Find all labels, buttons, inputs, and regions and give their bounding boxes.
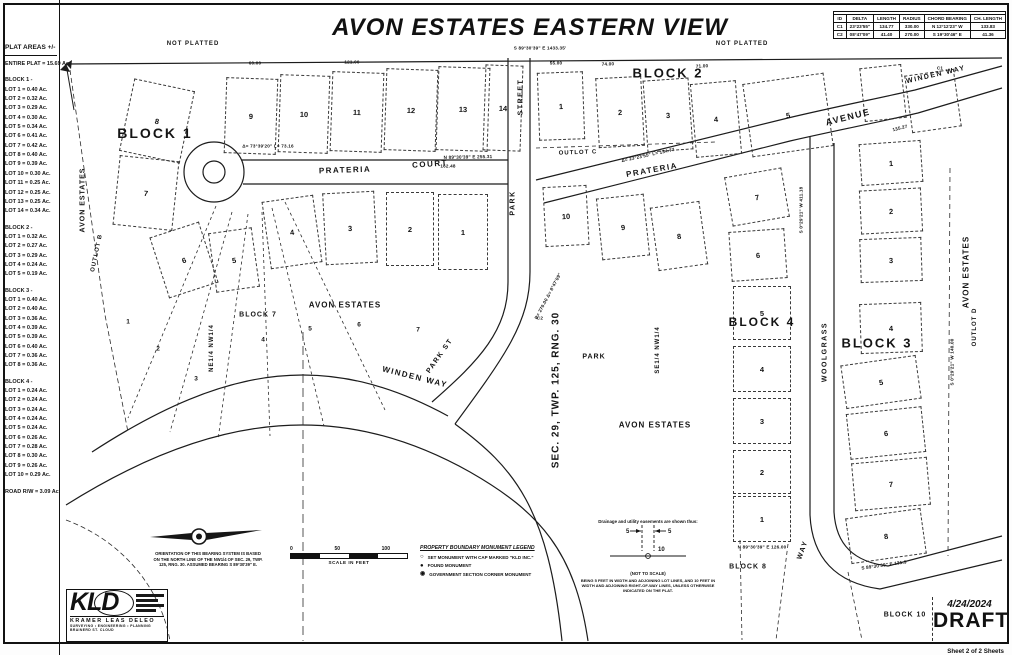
plat-areas-section: BLOCK 2 -LOT 1 = 0.32 Ac.LOT 2 = 0.27 Ac… <box>5 224 57 280</box>
scale-caption: SCALE IN FEET <box>290 560 408 565</box>
lot-number: 3 <box>760 417 764 426</box>
page-title: AVON ESTATES EASTERN VIEW <box>330 14 730 42</box>
curve-table-header: CHORD BEARING <box>924 15 970 23</box>
lot-number: 5 <box>785 110 790 119</box>
curve-table-row: C208°47'09"41.40270.00S 19°30'46" E41.36 <box>833 31 1005 39</box>
lot-number: 9 <box>620 222 625 231</box>
dimension-label: 55.00 <box>550 61 563 66</box>
area-label: BLOCK 7 <box>239 312 277 319</box>
lot-parcel: 4 <box>690 80 742 158</box>
lot-number: 3 <box>194 376 198 383</box>
legend-label: SET MONUMENT WITH CAP MARKED "KLD INC." <box>428 555 534 560</box>
lot-area: LOT 2 = 0.40 Ac. <box>5 305 57 314</box>
curve-table-cell: C1 <box>833 23 846 31</box>
lot-parcel: 9 <box>596 194 650 261</box>
easement-caption: (NOT TO SCALE) <box>578 571 718 576</box>
curve-table-cell: 08°47'09" <box>846 31 873 39</box>
street-label: PRATERIA <box>625 161 678 179</box>
area-label: BLOCK 8 <box>729 564 767 571</box>
lot-area: LOT 2 = 0.24 Ac. <box>5 396 57 405</box>
lot-area: LOT 5 = 0.34 Ac. <box>5 123 57 132</box>
street-label: AVENUE <box>825 107 872 128</box>
street-label: WAY <box>796 539 809 560</box>
lot-parcel: 10 <box>278 74 331 154</box>
legend-symbol-icon: ● <box>420 563 424 569</box>
lot-parcel: 1 <box>859 140 924 186</box>
lot-parcel: 2 <box>733 450 791 494</box>
curve-table-cell: 134.77 <box>874 23 900 31</box>
street-label: WINDEN WAY <box>381 365 448 390</box>
legend-title: PROPERTY BOUNDARY MONUMENT LEGEND <box>420 545 600 551</box>
area-label: PARK <box>582 354 605 361</box>
curve-data-table: IDDELTALENGTHRADIUSCHORD BEARINGCH. LENG… <box>833 11 1006 39</box>
area-label: AVON ESTATES <box>80 168 87 233</box>
area-label: AVON ESTATES <box>962 236 971 308</box>
lot-parcel: 2 <box>386 192 434 266</box>
lot-number: 1 <box>461 228 465 237</box>
lot-area: LOT 2 = 0.32 Ac. <box>5 95 57 104</box>
curve-table-cell: 41.40 <box>874 31 900 39</box>
lot-number: 14 <box>499 103 508 112</box>
lot-number: 4 <box>714 114 719 123</box>
lot-number: 1 <box>559 101 563 110</box>
easement-detail: Drainage and utility easements are shown… <box>578 519 718 594</box>
lot-parcel: 10 <box>542 185 589 247</box>
firm-name: KRAMER LEAS DELEO <box>70 616 164 624</box>
lot-area: LOT 3 = 0.29 Ac. <box>5 104 57 113</box>
lot-area: LOT 9 = 0.26 Ac. <box>5 462 57 471</box>
area-label: NE1/4 NW1/4 <box>209 324 215 372</box>
dimension-label: N 89°30'39" E 126.00 <box>738 545 787 550</box>
road-row-area: ROAD R/W = 3.09 Ac. <box>5 488 57 497</box>
lot-area: LOT 5 = 0.19 Ac. <box>5 270 57 279</box>
lot-number: 7 <box>143 188 148 197</box>
lot-number: 6 <box>883 428 888 437</box>
lot-number: 5 <box>878 377 883 386</box>
lot-area: LOT 5 = 0.39 Ac. <box>5 333 57 342</box>
lot-number: 10 <box>300 109 309 118</box>
area-label: AVON ESTATES <box>619 421 691 430</box>
lot-parcel: 3 <box>859 237 922 283</box>
dimension-label: S 0°29'21" W 140.00 <box>950 339 955 386</box>
dimension-label: 60.00 <box>249 61 262 66</box>
lot-area: LOT 9 = 0.39 Ac. <box>5 160 57 169</box>
lot-area: LOT 13 = 0.25 Ac. <box>5 198 57 207</box>
dimension-label: C1 <box>937 66 943 71</box>
lot-parcel: 7 <box>724 167 790 226</box>
lot-parcel: 8 <box>119 78 195 163</box>
firm-offices: BRAINERD ST. CLOUD <box>70 628 164 632</box>
easement-width-left: 5 <box>626 529 630 535</box>
dimension-label: S 89°30'39" E 1433.35' <box>514 46 567 51</box>
lot-number: 6 <box>756 250 761 259</box>
lot-parcel: 8 <box>845 508 927 564</box>
street-label: PARK <box>510 190 517 215</box>
lot-number: 8 <box>883 531 888 540</box>
curve-table-cell: 330.00 <box>899 23 924 31</box>
sheet-number: Sheet 2 of 2 Sheets <box>947 648 1004 655</box>
lot-parcel: 4 <box>262 195 323 270</box>
lot-number: 6 <box>181 255 188 265</box>
legend-item: ◉GOVERNMENT SECTION CORNER MONUMENT <box>420 571 600 577</box>
lot-area: LOT 3 = 0.36 Ac. <box>5 315 57 324</box>
lot-number: 6 <box>357 322 361 329</box>
easement-diagram: 5 5 10 <box>600 525 696 565</box>
curve-table-cell: C2 <box>833 31 846 39</box>
lot-area: LOT 4 = 0.24 Ac. <box>5 261 57 270</box>
lot-number: 1 <box>126 319 130 326</box>
area-label: BLOCK 4 <box>729 315 796 329</box>
lot-parcel: 5 <box>742 73 834 158</box>
lot-area: LOT 12 = 0.25 Ac. <box>5 189 57 198</box>
plat-areas-section: BLOCK 3 -LOT 1 = 0.40 Ac.LOT 2 = 0.40 Ac… <box>5 287 57 371</box>
dimension-label: 162.48 <box>440 164 455 169</box>
easement-title: Drainage and utility easements are shown… <box>578 519 718 524</box>
curve-table-header-row: IDDELTALENGTHRADIUSCHORD BEARINGCH. LENG… <box>833 15 1005 23</box>
draft-label: DRAFT <box>933 610 1006 631</box>
scale-tick: 50 <box>334 546 340 552</box>
dimension-label: S 0°29'21" W 411.18 <box>799 187 804 234</box>
scale-bar-graphic <box>290 553 408 559</box>
lot-number: 3 <box>348 223 353 232</box>
lot-parcel: 6 <box>728 228 787 282</box>
lot-parcel: 2 <box>859 187 923 234</box>
lot-parcel: 5 <box>733 286 791 340</box>
lot-parcel: 11 <box>330 71 385 153</box>
lot-number: 7 <box>754 192 760 202</box>
lot-area: LOT 2 = 0.27 Ac. <box>5 242 57 251</box>
scale-bar: 050100 SCALE IN FEET <box>290 546 416 565</box>
lot-area: LOT 3 = 0.29 Ac. <box>5 252 57 261</box>
lot-area: LOT 1 = 0.24 Ac. <box>5 387 57 396</box>
area-label: BLOCK 2 <box>632 66 703 81</box>
firm-address-smudge <box>136 594 164 614</box>
lot-number: 5 <box>231 255 236 264</box>
block-heading: BLOCK 3 - <box>5 287 57 296</box>
plat-areas-title: PLAT AREAS +/- <box>5 42 57 56</box>
area-label: OUTLOT D <box>972 308 978 347</box>
curve-table-header: ID <box>833 15 846 23</box>
lot-number: 4 <box>289 227 294 236</box>
lot-area: LOT 7 = 0.42 Ac. <box>5 142 57 151</box>
dimension-label: 135.27 <box>892 124 908 133</box>
lot-area: LOT 8 = 0.40 Ac. <box>5 151 57 160</box>
lot-parcel: 1 <box>733 496 791 542</box>
plat-sheet: 9101112131487654321123451098765432112345… <box>0 0 1012 655</box>
lot-number: 2 <box>408 225 412 234</box>
lot-area: LOT 6 = 0.41 Ac. <box>5 132 57 141</box>
lot-number: 13 <box>459 104 468 113</box>
lot-parcel: 4 <box>733 346 791 392</box>
lot-number: 11 <box>353 107 361 116</box>
curve-table-header: RADIUS <box>899 15 924 23</box>
lot-number: 7 <box>889 479 894 488</box>
lot-area: LOT 10 = 0.30 Ac. <box>5 170 57 179</box>
lot-number: 2 <box>156 346 160 353</box>
plat-areas-sidebar: PLAT AREAS +/- ENTIRE PLAT = 15.69 Ac. B… <box>0 0 60 655</box>
curve-table-cell: 41.36 <box>970 31 1005 39</box>
lot-parcel: 2 <box>595 76 645 148</box>
lot-number: 2 <box>889 206 894 215</box>
lot-number: 3 <box>889 255 893 264</box>
dimension-label: Δ= 73°39'20" L= 73.16 <box>242 144 293 149</box>
lot-area: LOT 6 = 0.40 Ac. <box>5 343 57 352</box>
lot-area: LOT 4 = 0.24 Ac. <box>5 415 57 424</box>
plat-areas-section: BLOCK 4 -LOT 1 = 0.24 Ac.LOT 2 = 0.24 Ac… <box>5 378 57 481</box>
lot-area: LOT 3 = 0.24 Ac. <box>5 406 57 415</box>
easement-width-right: 5 <box>668 529 672 535</box>
block-heading: BLOCK 2 - <box>5 224 57 233</box>
area-label: AVON ESTATES <box>309 301 381 310</box>
easement-note: BEING 5 FEET IN WIDTH AND ADJOINING LOT … <box>578 578 718 594</box>
lot-area: LOT 8 = 0.30 Ac. <box>5 452 57 461</box>
lot-parcel: 1 <box>438 194 488 270</box>
lot-number: 3 <box>666 110 671 119</box>
lot-parcel: 7 <box>851 457 931 511</box>
lot-area: LOT 14 = 0.34 Ac. <box>5 207 57 216</box>
lot-area: LOT 4 = 0.30 Ac. <box>5 114 57 123</box>
curve-table-cell: N 12°12'23" W <box>924 23 970 31</box>
lot-number: 1 <box>760 515 764 524</box>
lot-number: 8 <box>676 231 681 240</box>
dimension-label: 71.00 <box>696 63 709 69</box>
curve-table-header: DELTA <box>846 15 873 23</box>
plat-areas-section: BLOCK 1 -LOT 1 = 0.40 Ac.LOT 2 = 0.32 Ac… <box>5 76 57 216</box>
curve-table-cell: 133.83 <box>970 23 1005 31</box>
lot-number: 4 <box>261 337 265 344</box>
lot-area: LOT 1 = 0.32 Ac. <box>5 233 57 242</box>
lot-parcel: 1 <box>537 71 585 141</box>
lot-number: 10 <box>562 211 571 220</box>
lot-area: LOT 1 = 0.40 Ac. <box>5 86 57 95</box>
lot-area: LOT 7 = 0.28 Ac. <box>5 443 57 452</box>
firm-initials: KLD <box>70 591 132 615</box>
firm-logo-block: KLD KRAMER LEAS DELEO SURVEYING • ENGINE… <box>66 589 168 642</box>
street-label: STREET <box>518 79 525 116</box>
dimension-label: C2 <box>537 316 543 321</box>
lot-parcel: 5 <box>840 355 921 409</box>
monument-legend: PROPERTY BOUNDARY MONUMENT LEGEND ○SET M… <box>420 545 600 580</box>
area-label: BLOCK 10 <box>884 612 927 619</box>
scale-ticks: 050100 <box>290 546 390 553</box>
street-label: WOOLGRASS <box>822 322 829 382</box>
legend-label: FOUND MONUMENT <box>428 563 472 568</box>
lot-number: 12 <box>407 105 416 114</box>
area-label: BLOCK 1 <box>117 125 192 141</box>
scale-tick: 0 <box>290 546 293 552</box>
legend-item: ○SET MONUMENT WITH CAP MARKED "KLD INC." <box>420 554 600 560</box>
lot-parcel: 5 <box>208 227 260 293</box>
area-label: OUTLOT B <box>90 233 104 272</box>
lot-area: LOT 1 = 0.40 Ac. <box>5 296 57 305</box>
lot-area: LOT 7 = 0.36 Ac. <box>5 352 57 361</box>
lot-area: LOT 6 = 0.26 Ac. <box>5 434 57 443</box>
legend-symbol-icon: ○ <box>420 554 424 560</box>
lot-area: LOT 10 = 0.29 Ac. <box>5 471 57 480</box>
lot-number: 4 <box>760 365 764 374</box>
area-label: OUTLOT C <box>559 149 598 156</box>
dimension-label: 74.00 <box>602 61 615 66</box>
lot-number: 4 <box>889 323 893 332</box>
lot-area: LOT 4 = 0.39 Ac. <box>5 324 57 333</box>
legend-symbol-icon: ◉ <box>420 571 425 577</box>
lot-parcel: 6 <box>846 406 926 460</box>
draft-stamp: 4/24/2024 DRAFT <box>932 597 1006 641</box>
lot-number: 7 <box>416 327 420 334</box>
lot-number: 5 <box>308 326 312 333</box>
bearing-orientation-note: ORIENTATION OF THIS BEARING SYSTEM IS BA… <box>152 551 264 568</box>
lot-area: LOT 5 = 0.24 Ac. <box>5 424 57 433</box>
lot-parcel: 3 <box>643 77 694 152</box>
lot-number: 9 <box>249 111 253 120</box>
block-heading: BLOCK 4 - <box>5 378 57 387</box>
easement-width-row: 10 <box>658 547 665 553</box>
lot-parcel: 12 <box>384 68 439 152</box>
scale-tick: 100 <box>382 546 390 552</box>
dimension-label: N 89°30'39" E 255.31 <box>444 154 493 160</box>
kld-ellipse-icon <box>94 590 134 616</box>
lot-area: LOT 11 = 0.25 Ac. <box>5 179 57 188</box>
entire-plat-area: ENTIRE PLAT = 15.69 Ac. <box>5 60 55 69</box>
lot-number: 2 <box>760 468 764 477</box>
lot-number: 1 <box>889 158 894 167</box>
curve-table-header: CH. LENGTH <box>970 15 1005 23</box>
block-heading: BLOCK 1 - <box>5 76 57 85</box>
lot-area: LOT 8 = 0.36 Ac. <box>5 361 57 370</box>
dimension-label: 121.00 <box>344 60 359 65</box>
curve-table-cell: 23°23'55" <box>846 23 873 31</box>
area-label: BLOCK 3 <box>841 336 912 351</box>
legend-item: ●FOUND MONUMENT <box>420 563 600 569</box>
lot-parcel: 3 <box>733 398 791 444</box>
area-label: SEC. 29, TWP. 125, RNG. 30 <box>551 312 562 468</box>
street-label: PARK ST <box>425 337 454 374</box>
legend-label: GOVERNMENT SECTION CORNER MONUMENT <box>429 572 531 577</box>
area-label: SE1/4 NW1/4 <box>655 326 661 373</box>
curve-table-header: LENGTH <box>874 15 900 23</box>
lot-parcel: 3 <box>322 191 378 266</box>
curve-table-cell: 270.00 <box>899 31 924 39</box>
street-label: PRATERIA <box>319 165 372 176</box>
area-label: NOT PLATTED <box>167 41 220 47</box>
curve-table-row: C123°23'55"134.77330.00N 12°12'23" W133.… <box>833 23 1005 31</box>
lot-parcel: 7 <box>113 155 180 231</box>
curve-table-cell: S 19°30'46" E <box>924 31 970 39</box>
lot-parcel: 8 <box>650 201 708 271</box>
lot-number: 2 <box>618 107 623 116</box>
